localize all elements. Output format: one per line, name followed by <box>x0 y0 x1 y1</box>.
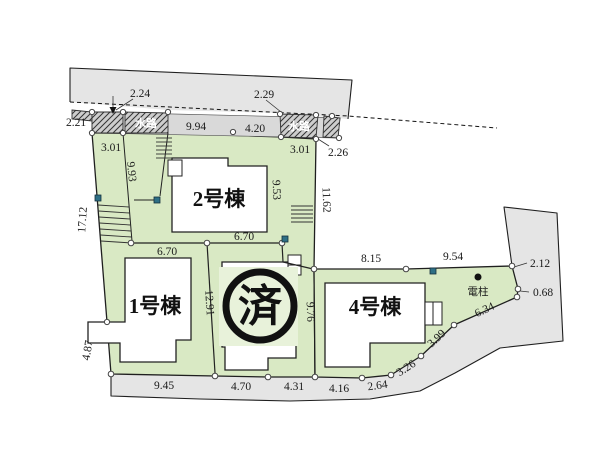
dim-9.76: 9.76 <box>304 302 317 323</box>
building-unit2-porch <box>168 160 182 176</box>
utility-pole-label: 電柱 <box>468 285 489 298</box>
dim-2.21: 2.21 <box>66 117 86 129</box>
dim-8.15: 8.15 <box>361 253 381 265</box>
dim-6.70-b: 6.70 <box>234 231 254 243</box>
dim-17.12: 17.12 <box>76 206 90 233</box>
dim-4.16: 4.16 <box>329 383 349 395</box>
dim-6.70-a: 6.70 <box>157 246 177 258</box>
dim-4.20: 4.20 <box>245 123 265 135</box>
label-unit4: 4号棟 <box>349 295 402 319</box>
dim-2.24: 2.24 <box>130 88 150 100</box>
dim-12.91: 12.91 <box>202 289 216 316</box>
dim-4.70: 4.70 <box>231 381 251 393</box>
dim-2.29: 2.29 <box>254 89 274 101</box>
dim-3.01-left: 3.01 <box>101 142 121 154</box>
dim-9.94: 9.94 <box>186 121 206 133</box>
label-unit1: 1号棟 <box>129 294 182 318</box>
utility-pole-dot <box>475 274 482 281</box>
dim-2.26: 2.26 <box>328 147 348 159</box>
sold-character: 済 <box>238 282 283 331</box>
waterway-hatch-right <box>323 116 340 138</box>
dim-9.53: 9.53 <box>270 180 283 201</box>
dim-9.45: 9.45 <box>154 380 174 392</box>
waterway-label-left: 水路 <box>135 116 158 130</box>
dim-2.12: 2.12 <box>530 258 550 270</box>
dim-9.54: 9.54 <box>443 251 463 263</box>
waterway-label-right: 水路 <box>288 119 311 133</box>
dim-0.68: 0.68 <box>533 287 553 299</box>
dim-4.87: 4.87 <box>80 339 95 361</box>
dim-4.31: 4.31 <box>284 381 304 393</box>
site-plan-page: 電柱 済 2号棟 1号棟 4号棟 水路 水路 2.24 2.29 2.21 9.… <box>0 0 600 450</box>
label-unit2: 2号棟 <box>193 187 246 211</box>
waterway-hatch-left <box>92 112 123 133</box>
site-plan-drawing: 電柱 済 2号棟 1号棟 4号棟 水路 水路 2.24 2.29 2.21 9.… <box>0 0 600 450</box>
dim-11.62: 11.62 <box>320 187 333 213</box>
dim-9.93: 9.93 <box>124 161 138 183</box>
dim-3.01-right: 3.01 <box>290 144 310 156</box>
